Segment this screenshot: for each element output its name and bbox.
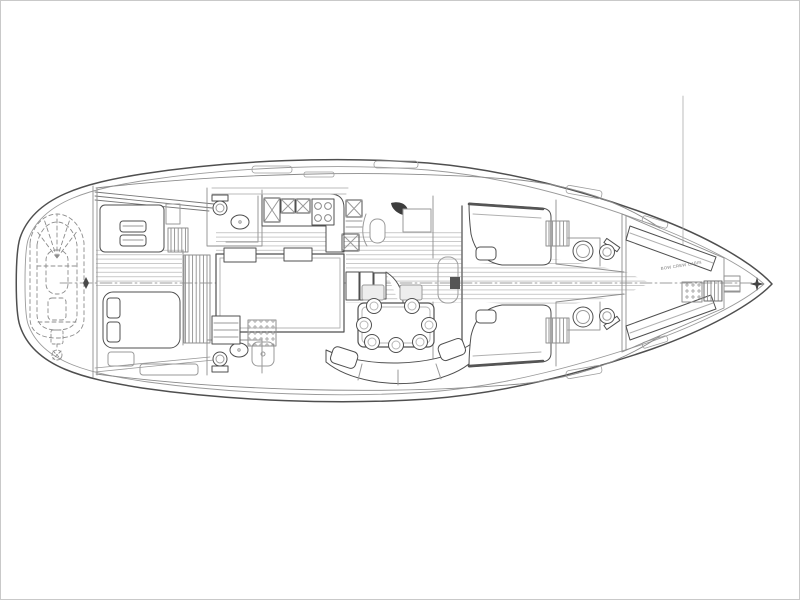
- engine-room-locker: [224, 248, 256, 262]
- nav-seat: [370, 219, 385, 243]
- hanging-locker-fwd-bottom: [546, 318, 569, 343]
- chair-cushion: [425, 321, 433, 329]
- yacht-plan-svg: BOW CREW CABIN: [1, 1, 799, 599]
- fwd-cabin-top: [469, 203, 551, 265]
- pillow: [476, 310, 496, 323]
- crew-locker-dark: [704, 281, 722, 301]
- chair-cushion: [368, 338, 376, 346]
- toilet: [213, 352, 227, 366]
- step: [346, 272, 359, 300]
- hanging-locker-fwd-top: [546, 221, 569, 246]
- pillow: [107, 298, 120, 318]
- steps-unit: [168, 228, 188, 252]
- chair-cushion: [370, 302, 378, 310]
- nav-desk: [403, 209, 431, 232]
- seat-back: [362, 285, 384, 300]
- mast: [450, 277, 460, 289]
- chair-cushion: [408, 302, 416, 310]
- toilet: [600, 245, 615, 260]
- hanging-locker-aft: [184, 255, 210, 343]
- chair-cushion: [416, 338, 424, 346]
- fwd-cabin-bottom: [469, 305, 551, 367]
- chair-cushion: [360, 321, 368, 329]
- pillow: [476, 247, 496, 260]
- yacht-floor-plan-canvas: BOW CREW CABIN: [0, 0, 800, 600]
- sink: [231, 215, 249, 229]
- toilet: [600, 309, 615, 324]
- yacht-plan: BOW CREW CABIN: [16, 96, 772, 402]
- dresser-grid: [248, 320, 276, 346]
- toilet: [213, 201, 227, 215]
- crew-storage-grid: [682, 282, 702, 302]
- pillow: [107, 322, 120, 342]
- seat-back: [400, 285, 422, 300]
- sink: [230, 343, 248, 357]
- chair-cushion: [392, 341, 400, 349]
- engine-room-locker: [284, 248, 312, 261]
